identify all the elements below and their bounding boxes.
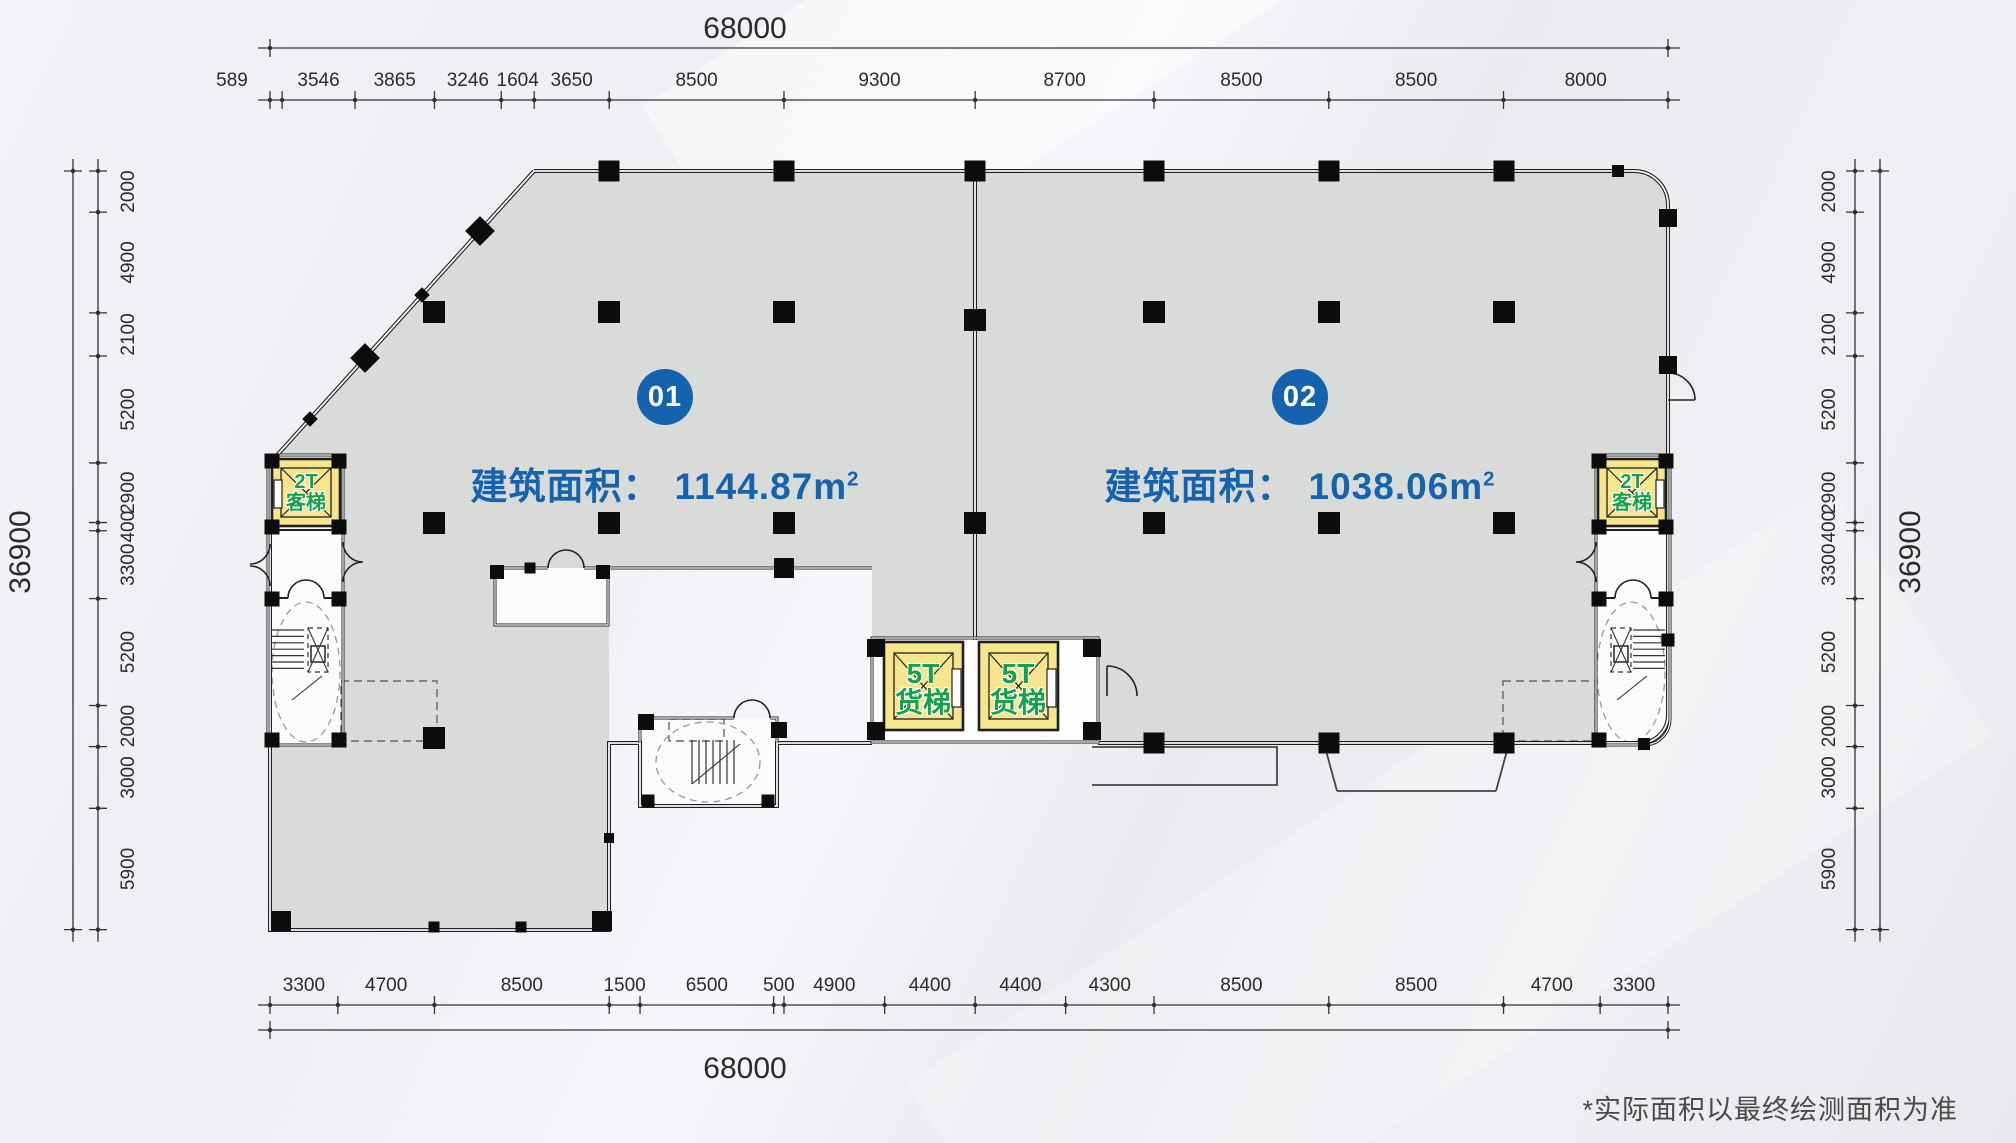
svg-text:8500: 8500	[675, 70, 717, 91]
svg-text:3650: 3650	[551, 70, 593, 91]
svg-text:4700: 4700	[1531, 975, 1573, 996]
svg-text:4900: 4900	[1819, 241, 1840, 283]
svg-text:5200: 5200	[1819, 631, 1840, 673]
svg-text:8500: 8500	[501, 975, 543, 996]
svg-text:5200: 5200	[118, 388, 139, 430]
svg-text:6500: 6500	[686, 975, 728, 996]
unit-01-area-label: 建筑面积：1144.87m2	[471, 456, 860, 510]
svg-text:3000: 3000	[1819, 756, 1840, 798]
svg-text:589: 589	[216, 70, 248, 91]
passenger-elevator-label-right: 2T 客梯	[1612, 472, 1652, 514]
area-superscript: 2	[847, 469, 859, 491]
svg-text:3300: 3300	[1819, 544, 1840, 586]
svg-text:8500: 8500	[1395, 975, 1437, 996]
svg-text:5900: 5900	[1819, 848, 1840, 890]
svg-text:3246: 3246	[447, 70, 489, 91]
svg-text:9300: 9300	[858, 70, 900, 91]
svg-text:4400: 4400	[999, 975, 1041, 996]
svg-text:2900: 2900	[1819, 472, 1840, 514]
svg-text:36900: 36900	[1894, 510, 1927, 593]
svg-text:8500: 8500	[1395, 70, 1437, 91]
svg-text:8000: 8000	[1565, 70, 1607, 91]
svg-text:2000: 2000	[118, 170, 139, 212]
svg-text:8700: 8700	[1043, 70, 1085, 91]
area-superscript: 2	[1483, 469, 1495, 491]
svg-text:2900: 2900	[118, 472, 139, 514]
footnote: *实际面积以最终绘测面积为准	[1582, 1088, 1958, 1127]
svg-text:4900: 4900	[813, 975, 855, 996]
svg-text:2000: 2000	[1819, 170, 1840, 212]
left-dimension: 2000490021005200290040033005200200030005…	[4, 169, 139, 932]
svg-text:3000: 3000	[118, 756, 139, 798]
svg-text:2100: 2100	[118, 313, 139, 355]
passenger-elevator-label-left: 2T 客梯	[286, 472, 326, 514]
svg-text:400: 400	[1819, 511, 1840, 543]
svg-text:8500: 8500	[1220, 70, 1262, 91]
freight-elevator-label-1: 5T 货梯	[895, 659, 951, 717]
unit-01-badge: 01	[637, 369, 693, 425]
svg-text:4700: 4700	[365, 975, 407, 996]
svg-text:400: 400	[118, 511, 139, 543]
svg-text:3300: 3300	[283, 975, 325, 996]
top-dimension: 5893546386532461604365085009300870085008…	[216, 12, 1670, 102]
svg-text:68000: 68000	[703, 12, 786, 45]
svg-text:500: 500	[763, 975, 795, 996]
svg-text:4400: 4400	[909, 975, 951, 996]
svg-text:3300: 3300	[1613, 975, 1655, 996]
svg-text:68000: 68000	[703, 1052, 786, 1085]
area-value: 1038.06m	[1309, 466, 1484, 507]
svg-text:4300: 4300	[1089, 975, 1131, 996]
svg-text:2000: 2000	[118, 705, 139, 747]
area-caption: 建筑面积：	[471, 466, 661, 507]
svg-text:8500: 8500	[1220, 975, 1262, 996]
unit-02-area-label: 建筑面积：1038.06m2	[1105, 456, 1496, 510]
floorplan-drawing: 5893546386532461604365085009300870085008…	[0, 0, 2016, 1143]
unit-02-badge: 02	[1272, 369, 1328, 425]
svg-text:4900: 4900	[118, 241, 139, 283]
svg-text:3300: 3300	[118, 544, 139, 586]
svg-text:1604: 1604	[497, 70, 540, 91]
svg-text:2100: 2100	[1819, 313, 1840, 355]
floorplan-canvas: 5893546386532461604365085009300870085008…	[0, 0, 2016, 1143]
svg-text:5200: 5200	[118, 631, 139, 673]
svg-text:2000: 2000	[1819, 705, 1840, 747]
right-dimension: 2000490021005200290040033005200200030005…	[1819, 169, 1927, 932]
svg-text:3546: 3546	[297, 70, 339, 91]
svg-text:3865: 3865	[374, 70, 416, 91]
svg-text:5200: 5200	[1819, 388, 1840, 430]
svg-text:5900: 5900	[118, 848, 139, 890]
area-caption: 建筑面积：	[1105, 466, 1295, 507]
freight-elevator-label-2: 5T 货梯	[990, 659, 1046, 717]
svg-text:36900: 36900	[4, 510, 37, 593]
svg-text:1500: 1500	[603, 975, 645, 996]
area-value: 1144.87m	[675, 466, 848, 507]
